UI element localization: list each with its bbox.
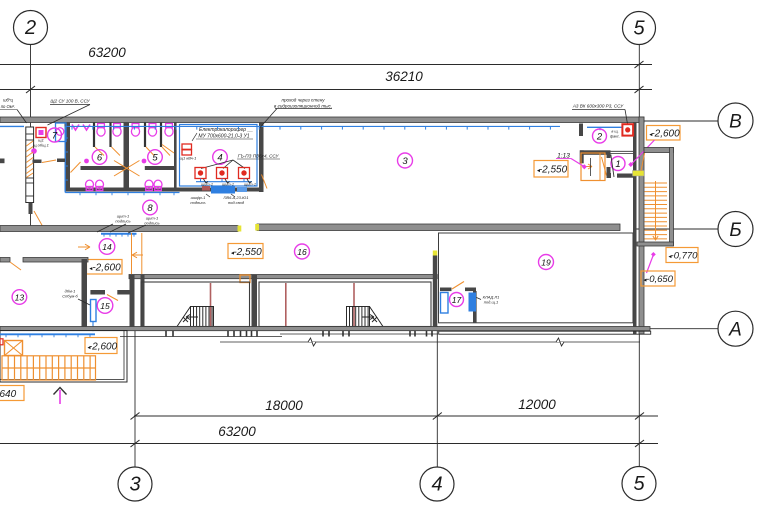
svg-text:2: 2	[596, 132, 603, 143]
svg-text:под.свод: под.свод	[228, 200, 245, 205]
svg-text:-2,550: -2,550	[539, 165, 568, 176]
svg-text:2: 2	[24, 17, 36, 39]
svg-text:щ.общ.1: щ.общ.1	[33, 143, 49, 148]
svg-text:5: 5	[633, 473, 645, 495]
svg-text:63200: 63200	[88, 45, 126, 60]
svg-text:Щ2 СУ 100 В, ССУ: Щ2 СУ 100 В, ССУ	[50, 99, 90, 104]
svg-text:Спбум-б: Спбум-б	[62, 294, 78, 299]
svg-text:3: 3	[129, 474, 140, 496]
svg-text:в гидроизоляционной тыс.: в гидроизоляционной тыс.	[274, 103, 332, 109]
svg-text:факс.: факс.	[610, 135, 620, 139]
svg-text:16: 16	[297, 247, 307, 257]
svg-text:-2,600: -2,600	[651, 129, 680, 140]
svg-text:63200: 63200	[218, 424, 256, 439]
svg-text:18000: 18000	[265, 398, 303, 413]
svg-text:-2,550: -2,550	[233, 247, 262, 258]
svg-text:13: 13	[15, 293, 25, 303]
svg-text:по Ом².: по Ом².	[1, 104, 15, 109]
svg-text:-2,640: -2,640	[0, 389, 17, 400]
svg-text:проход через стену: проход через стену	[281, 98, 325, 103]
svg-text:◄: ◄	[648, 132, 653, 138]
svg-text:◄: ◄	[87, 345, 92, 351]
svg-text:36210: 36210	[385, 69, 423, 84]
svg-text:8: 8	[147, 203, 153, 214]
svg-text:подпись: подпись	[115, 219, 130, 224]
svg-text:15: 15	[100, 301, 110, 311]
svg-text:подпись: подпись	[144, 221, 159, 226]
svg-text:Б: Б	[729, 220, 741, 241]
svg-text:-0,770: -0,770	[671, 251, 699, 262]
svg-text:◄: ◄	[536, 168, 541, 174]
svg-text:В: В	[729, 112, 742, 133]
svg-text:Електрокалорифер __: Електрокалорифер __	[199, 127, 253, 133]
svg-text:А: А	[728, 320, 742, 341]
svg-text:14: 14	[102, 242, 112, 252]
svg-text:А3 ВК 600х300 Р3, ССУ: А3 ВК 600х300 Р3, ССУ	[572, 104, 624, 109]
svg-text:щит-1: щит-1	[244, 182, 256, 186]
svg-text:1: 1	[615, 159, 620, 170]
svg-text:4: 4	[217, 153, 222, 164]
svg-text:щ1 кВч-1: щ1 кВч-1	[180, 156, 197, 161]
svg-text:под.щ.1: под.щ.1	[484, 300, 499, 305]
svg-text:ГЪ-ПЗ ПВ6х4, ССУ: ГЪ-ПЗ ПВ6х4, ССУ	[238, 154, 280, 159]
svg-text:-0,650: -0,650	[646, 274, 674, 285]
svg-text:◄: ◄	[643, 278, 648, 284]
svg-text:-2,600: -2,600	[89, 342, 118, 353]
svg-text:подпись: подпись	[190, 200, 205, 205]
svg-text:◄: ◄	[88, 266, 93, 272]
svg-text:7: 7	[52, 131, 58, 142]
svg-text:в щ.: в щ.	[611, 130, 618, 134]
svg-text:МУ 700х600-21,0-3 У1: МУ 700х600-21,0-3 У1	[198, 134, 249, 140]
svg-text:12000: 12000	[518, 397, 556, 412]
svg-text:17: 17	[452, 295, 462, 305]
svg-text:-2,600: -2,600	[92, 263, 121, 274]
svg-text:шб*ц: шб*ц	[3, 98, 13, 103]
svg-text:◄: ◄	[230, 250, 235, 256]
svg-text:5: 5	[633, 18, 645, 40]
svg-text:◄: ◄	[668, 254, 673, 260]
svg-text:4: 4	[431, 474, 442, 496]
svg-text:19: 19	[541, 258, 551, 268]
svg-text:3: 3	[402, 156, 408, 167]
svg-text:5: 5	[152, 153, 158, 164]
svg-text:6: 6	[97, 153, 103, 164]
